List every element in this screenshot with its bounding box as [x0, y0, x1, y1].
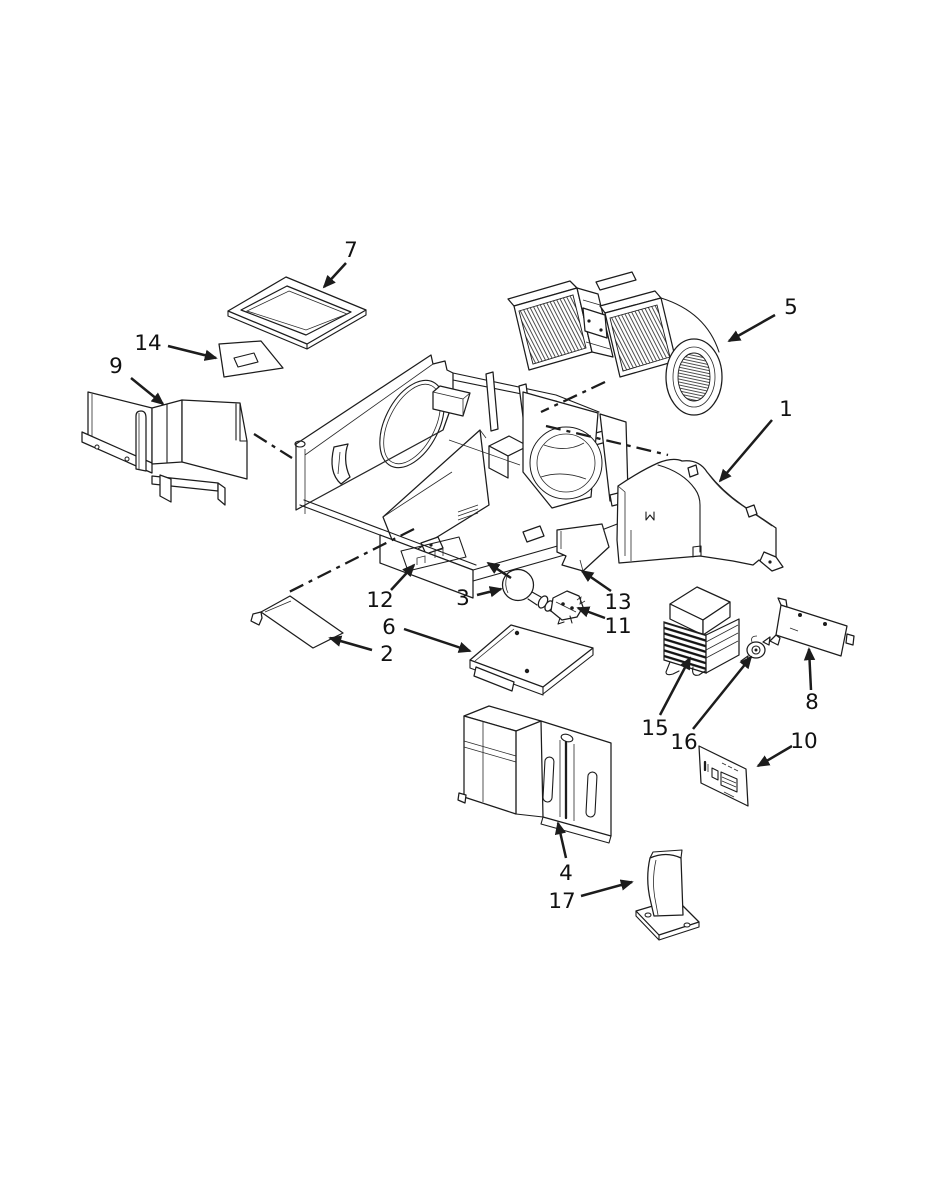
part-8-bracket-plate [770, 598, 854, 656]
callout-3-label: 3 [456, 586, 470, 611]
part-9-air-deflector [82, 392, 247, 505]
part-6-mounting-plate [470, 625, 593, 695]
callout-arrow-17 [581, 882, 632, 896]
callout-5-label: 5 [784, 295, 798, 320]
callout-9-label: 9 [109, 354, 123, 379]
callout-8-label: 8 [805, 690, 819, 715]
callout-arrow-6 [404, 629, 470, 651]
callout-11-label: 11 [604, 614, 631, 639]
callout-arrow-10 [758, 746, 792, 766]
callout-15-label: 15 [641, 716, 668, 741]
callout-arrow-7 [324, 263, 346, 287]
part-1-exhaust-duct [617, 459, 783, 571]
callout-arrow-8 [809, 649, 811, 690]
part-17-support-bracket [636, 850, 699, 940]
part-15-transformer [664, 587, 739, 675]
callout-10-label: 10 [790, 729, 817, 754]
part-16-thermostat [741, 636, 770, 664]
callout-2-label: 2 [380, 642, 394, 667]
callout-7-label: 7 [344, 238, 358, 263]
part-5-blower-assembly [508, 272, 722, 415]
callout-14-label: 14 [134, 331, 161, 356]
callout-arrow-13 [582, 571, 611, 591]
callout-arrow-3 [477, 589, 501, 595]
callout-17-label: 17 [548, 889, 575, 914]
part-14-wedge-bracket [219, 341, 283, 377]
assembly-axis-line-9 [254, 434, 292, 458]
callout-1-label: 1 [779, 397, 793, 422]
callout-arrow-5 [729, 315, 775, 341]
callout-arrow-9 [131, 378, 163, 404]
callout-arrow-11 [578, 608, 605, 618]
callout-arrow-1 [720, 420, 772, 481]
part-2-access-cover [251, 596, 343, 648]
callout-4-label: 4 [559, 861, 573, 886]
exploded-parts-diagram: 7 14 9 5 1 12 3 13 11 2 6 15 16 8 10 4 1… [0, 0, 927, 1200]
callout-arrow-14 [168, 346, 216, 358]
part-13-cavity-cover [557, 524, 609, 571]
callout-arrow-15 [660, 658, 690, 715]
part-7-filter-frame [228, 277, 366, 349]
part-4-air-duct [458, 706, 611, 843]
callout-16-label: 16 [670, 730, 697, 755]
callout-13-label: 13 [604, 590, 631, 615]
callout-arrow-2 [330, 638, 372, 650]
callout-6-label: 6 [382, 615, 396, 640]
callout-arrow-4 [558, 823, 566, 858]
part-10-label-plate [699, 746, 748, 806]
callout-12-label: 12 [366, 588, 393, 613]
